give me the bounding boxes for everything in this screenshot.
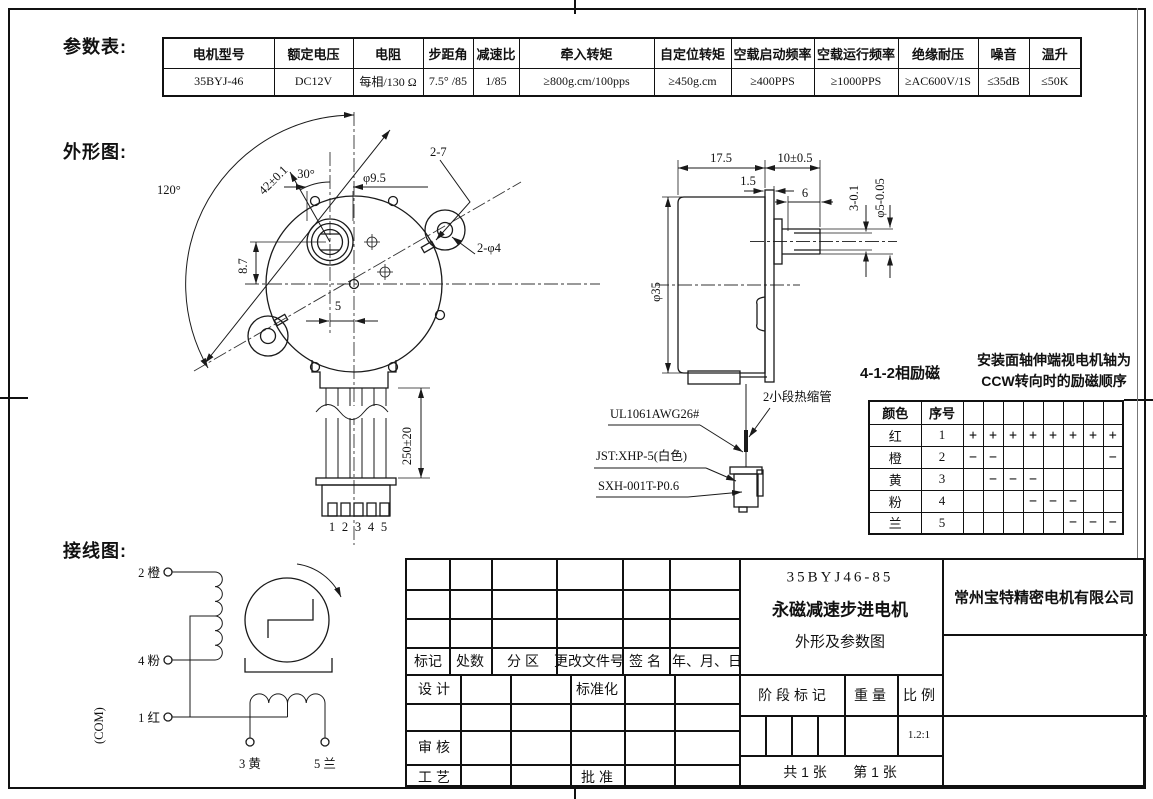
scale-label: 比 例	[903, 685, 935, 705]
param-value-cell: ≤35dB	[978, 68, 1029, 96]
pin-number: 2	[342, 520, 348, 534]
excitation-row-pink: 粉 4 − − −	[869, 490, 1123, 512]
grid-line	[407, 703, 739, 705]
step-cell: +	[983, 424, 1003, 446]
param-value-cell: ≥400PPS	[731, 68, 814, 96]
motor-front-outline	[248, 196, 465, 388]
step-cell	[963, 512, 983, 534]
step-cell: +	[963, 424, 983, 446]
sheet-total: 共 1 张	[783, 762, 827, 782]
excitation-col-color: 颜色	[869, 401, 921, 424]
dim-shaft-flat: 3-0.1	[847, 185, 861, 211]
wiring-lines	[172, 572, 325, 738]
wiring-terminals	[164, 568, 329, 746]
pin-numbers: 1 2 3 4 5	[329, 520, 387, 534]
label-blue: 5 兰	[314, 757, 336, 771]
stage-mark-label: 阶 段 标 记	[758, 685, 826, 705]
param-value-cell: ≥450g.cm	[654, 68, 731, 96]
pin-number: 1	[329, 520, 335, 534]
excitation-col-no: 序号	[921, 401, 963, 424]
dim-body-dia: φ35	[649, 282, 663, 302]
role-review: 审 核	[418, 737, 450, 757]
step-cell: −	[1103, 512, 1123, 534]
excitation-mode-label: 4-1-2相励磁	[860, 362, 940, 383]
param-header-cell: 电机型号	[163, 38, 274, 68]
terminal-1	[164, 713, 172, 721]
excitation-note-line2: CCW转向时的励磁顺序	[963, 371, 1145, 392]
wire-color: 黄	[869, 468, 921, 490]
terminal-3	[246, 738, 254, 746]
param-value-cell: 每相/130 Ω	[353, 68, 423, 96]
side-view-notes: 2小段热缩管 UL1061AWG26# JST:XHP-5(白色) SXH-00…	[594, 389, 832, 497]
rotor-symbol	[245, 564, 341, 672]
engineering-drawing-sheet: 参数表: 外形图: 接线图: 电机型号 额定电压 电阻 步距角 减速比 牵入转矩…	[0, 0, 1153, 799]
grid-line	[510, 674, 512, 789]
dim-ear-holes: 2-φ4	[477, 241, 502, 255]
wire-number: 4	[921, 490, 963, 512]
grid-line	[449, 560, 451, 674]
excitation-row-orange: 橙 2 − − −	[869, 446, 1123, 468]
param-header-cell: 减速比	[473, 38, 519, 68]
step-cell: −	[1063, 512, 1083, 534]
excitation-header-row: 颜色 序号	[869, 401, 1123, 424]
dim-offset-v: 8.7	[236, 258, 250, 274]
terminal-5	[321, 738, 329, 746]
grid-line	[491, 560, 493, 674]
wire-number: 5	[921, 512, 963, 534]
param-header-cell: 空载启动频率	[731, 38, 814, 68]
param-header-cell: 自定位转矩	[654, 38, 731, 68]
param-header-cell: 噪音	[978, 38, 1029, 68]
label-orange: 2 橙	[138, 565, 160, 580]
grid-line	[407, 730, 739, 732]
wire-color: 兰	[869, 512, 921, 534]
param-header-cell: 温升	[1029, 38, 1081, 68]
step-cell: +	[1023, 424, 1043, 446]
pin-number: 4	[368, 520, 375, 534]
step-cell	[1043, 512, 1063, 534]
grid-line	[739, 755, 942, 757]
step-cell: −	[1023, 490, 1043, 512]
param-header-cell: 电阻	[353, 38, 423, 68]
note-heat-shrink: 2小段热缩管	[763, 389, 832, 404]
param-value-cell: 1/85	[473, 68, 519, 96]
excitation-note: 安装面轴伸端视电机轴为 CCW转向时的励磁顺序	[963, 350, 1145, 392]
step-header-cell	[963, 401, 983, 424]
small-holes	[364, 234, 393, 280]
step-cell	[1063, 468, 1083, 490]
grid-line	[674, 674, 676, 789]
param-value-cell: DC12V	[274, 68, 353, 96]
note-terminal-type: SXH-001T-P0.6	[598, 479, 679, 493]
step-cell: −	[1043, 490, 1063, 512]
param-value-cell: 35BYJ-46	[163, 68, 274, 96]
grid-line	[407, 589, 739, 591]
grid-line	[407, 647, 739, 649]
center-mark-left	[0, 397, 28, 399]
step-header-cell	[1083, 401, 1103, 424]
grid-line	[791, 715, 793, 755]
motor-side-outline	[678, 190, 820, 384]
parameter-table-value-row: 35BYJ-46 DC12V 每相/130 Ω 7.5° /85 1/85 ≥8…	[163, 68, 1081, 96]
step-cell	[1003, 512, 1023, 534]
role-design: 设 计	[418, 679, 450, 699]
step-header-cell	[1063, 401, 1083, 424]
step-cell: −	[963, 446, 983, 468]
excitation-row-blue: 兰 5 − − −	[869, 512, 1123, 534]
step-cell	[1003, 490, 1023, 512]
side-view-drawing: 17.5 10±0.5 1.5 6 3-0.1 φ5-0.05 φ35	[580, 140, 900, 540]
rev-header-mark: 标记	[414, 651, 442, 671]
side-view-dimensions: 17.5 10±0.5 1.5 6 3-0.1 φ5-0.05 φ35	[649, 151, 890, 373]
terminal-4	[164, 656, 172, 664]
connector-side	[730, 467, 763, 512]
param-table-label: 参数表:	[63, 33, 127, 59]
dim-offset-h: 5	[335, 299, 341, 313]
pin-number: 3	[355, 520, 361, 534]
drawing-title: 外形及参数图	[795, 631, 885, 652]
dim-boss-dia: φ9.5	[363, 171, 386, 185]
step-cell	[1103, 490, 1123, 512]
role-standardization: 标准化	[576, 679, 618, 699]
front-view-centerlines	[194, 112, 600, 545]
wiring-labels: 2 橙 4 粉 1 红 (COM) 3 黄 5 兰	[92, 565, 336, 771]
front-view-drawing: 1 2 3 4 5 120° 42±0.1 30° φ9.5 2-7 2-φ4 …	[80, 105, 560, 550]
param-value-cell: ≥AC600V/1S	[898, 68, 978, 96]
step-cell	[1023, 446, 1043, 468]
excitation-row-red: 红 1 + + + + + + + +	[869, 424, 1123, 446]
center-mark-bottom	[574, 785, 576, 799]
label-pink: 4 粉	[138, 653, 160, 668]
dim-120deg: 120°	[157, 183, 181, 197]
step-header-cell	[1043, 401, 1063, 424]
weight-label: 重 量	[854, 685, 886, 705]
label-yellow: 3 黄	[239, 757, 261, 771]
mounting-hole	[261, 329, 276, 344]
grid-line	[817, 715, 819, 755]
step-cell	[1023, 512, 1043, 534]
wire-number: 1	[921, 424, 963, 446]
step-header-cell	[1023, 401, 1043, 424]
step-cell	[1063, 446, 1083, 468]
step-cell	[1003, 446, 1023, 468]
dim-30deg: 30°	[297, 167, 315, 181]
front-view-dimensions: 120° 42±0.1 30° φ9.5 2-7 2-φ4 8.7 5 250±…	[157, 115, 502, 478]
grid-line	[460, 674, 462, 789]
param-header-cell: 牵入转矩	[519, 38, 654, 68]
label-common: (COM)	[92, 707, 106, 744]
wire-color: 红	[869, 424, 921, 446]
step-cell: −	[983, 468, 1003, 490]
dim-shaft-length: 10±0.5	[778, 151, 813, 165]
step-cell: +	[1103, 424, 1123, 446]
note-wire-type: UL1061AWG26#	[610, 407, 700, 421]
grid-line	[624, 674, 626, 789]
param-header-cell: 步距角	[423, 38, 473, 68]
step-cell	[1083, 490, 1103, 512]
role-approve: 批 准	[581, 767, 613, 787]
step-cell: −	[1063, 490, 1083, 512]
excitation-sequence-table: 颜色 序号 红 1 + + + + + + + + 橙 2 − −	[868, 400, 1124, 535]
coil-a-center-tap	[190, 616, 215, 717]
step-cell	[1083, 446, 1103, 468]
dim-42: 42±0.1	[256, 163, 291, 198]
side-view-centerlines	[655, 242, 897, 286]
step-cell: −	[1003, 468, 1023, 490]
grid-line	[407, 674, 942, 676]
step-cell	[963, 468, 983, 490]
scale-value: 1.2:1	[908, 729, 930, 741]
step-cell: +	[1043, 424, 1063, 446]
step-cell: +	[1083, 424, 1103, 446]
step-header-cell	[1003, 401, 1023, 424]
param-value-cell: ≥1000PPS	[814, 68, 898, 96]
wire-number: 3	[921, 468, 963, 490]
parameter-table: 电机型号 额定电压 电阻 步距角 减速比 牵入转矩 自定位转矩 空载启动频率 空…	[162, 37, 1082, 97]
rev-header-docno: 更改文件号	[554, 651, 624, 671]
grid-line	[942, 560, 944, 789]
grid-line	[407, 764, 739, 766]
excitation-note-line1: 安装面轴伸端视电机轴为	[963, 350, 1145, 371]
rev-header-signature: 签 名	[629, 651, 661, 671]
grid-line	[942, 634, 1147, 636]
rev-header-zone: 分 区	[507, 651, 539, 671]
coil-a	[215, 572, 222, 660]
center-mark-right	[1124, 399, 1153, 401]
step-cell	[1083, 468, 1103, 490]
stator-bracket	[245, 658, 332, 672]
wire-color: 橙	[869, 446, 921, 468]
param-header-cell: 额定电压	[274, 38, 353, 68]
coil-b	[250, 694, 325, 703]
company-name: 常州宝特精密电机有限公司	[954, 587, 1134, 608]
param-header-cell: 空载运行频率	[814, 38, 898, 68]
note-connector-type: JST:XHP-5(白色)	[596, 448, 687, 463]
connector-front	[316, 478, 396, 516]
center-mark-top	[574, 0, 576, 14]
step-cell: +	[1063, 424, 1083, 446]
sheet-number: 第 1 张	[853, 762, 897, 782]
step-cell: −	[983, 446, 1003, 468]
step-cell	[1043, 468, 1063, 490]
step-cell	[963, 490, 983, 512]
parameter-table-header-row: 电机型号 额定电压 电阻 步距角 减速比 牵入转矩 自定位转矩 空载启动频率 空…	[163, 38, 1081, 68]
param-value-cell: ≥800g.cm/100pps	[519, 68, 654, 96]
title-block: 标记 处数 分 区 更改文件号 签 名 年、月、日 设 计 标准化 审 核 工 …	[405, 558, 1145, 787]
wire-color: 粉	[869, 490, 921, 512]
step-cell	[1103, 468, 1123, 490]
product-name: 永磁减速步进电机	[772, 596, 908, 621]
step-header-cell	[983, 401, 1003, 424]
dim-body-length: 17.5	[710, 151, 732, 165]
param-value-cell: ≤50K	[1029, 68, 1081, 96]
step-cell: −	[1083, 512, 1103, 534]
role-process: 工 艺	[418, 767, 450, 787]
grid-line	[407, 618, 739, 620]
flange-slot	[421, 241, 434, 252]
mounting-plate	[765, 190, 774, 382]
product-code: 35BYJ46-85	[787, 570, 894, 587]
pin-number: 5	[381, 520, 387, 534]
label-red: 1 红	[138, 710, 160, 725]
fold-line	[1137, 8, 1138, 558]
rev-header-date: 年、月、日	[672, 651, 742, 671]
dim-flat-length: 6	[802, 186, 808, 200]
step-cell: −	[1023, 468, 1043, 490]
step-header-cell	[1103, 401, 1123, 424]
wiring-diagram: 2 橙 4 粉 1 红 (COM) 3 黄 5 兰	[85, 548, 395, 788]
dim-plate-thickness: 1.5	[740, 174, 756, 188]
step-cell: −	[1103, 446, 1123, 468]
param-header-cell: 绝缘耐压	[898, 38, 978, 68]
grid-line	[739, 715, 1147, 717]
step-cell	[1043, 446, 1063, 468]
case-clip	[757, 297, 765, 331]
step-cell: +	[1003, 424, 1023, 446]
rev-header-count: 处数	[456, 651, 484, 671]
wire-number: 2	[921, 446, 963, 468]
dim-shaft-dia: φ5-0.05	[873, 178, 887, 218]
grid-line	[669, 560, 671, 674]
grid-line	[765, 715, 767, 755]
dim-wire-length: 250±20	[400, 427, 414, 465]
dim-slots: 2-7	[430, 145, 447, 159]
param-value-cell: 7.5° /85	[423, 68, 473, 96]
excitation-row-yellow: 黄 3 − − −	[869, 468, 1123, 490]
step-cell	[983, 512, 1003, 534]
grid-line	[570, 674, 572, 789]
terminal-2	[164, 568, 172, 576]
step-cell	[983, 490, 1003, 512]
